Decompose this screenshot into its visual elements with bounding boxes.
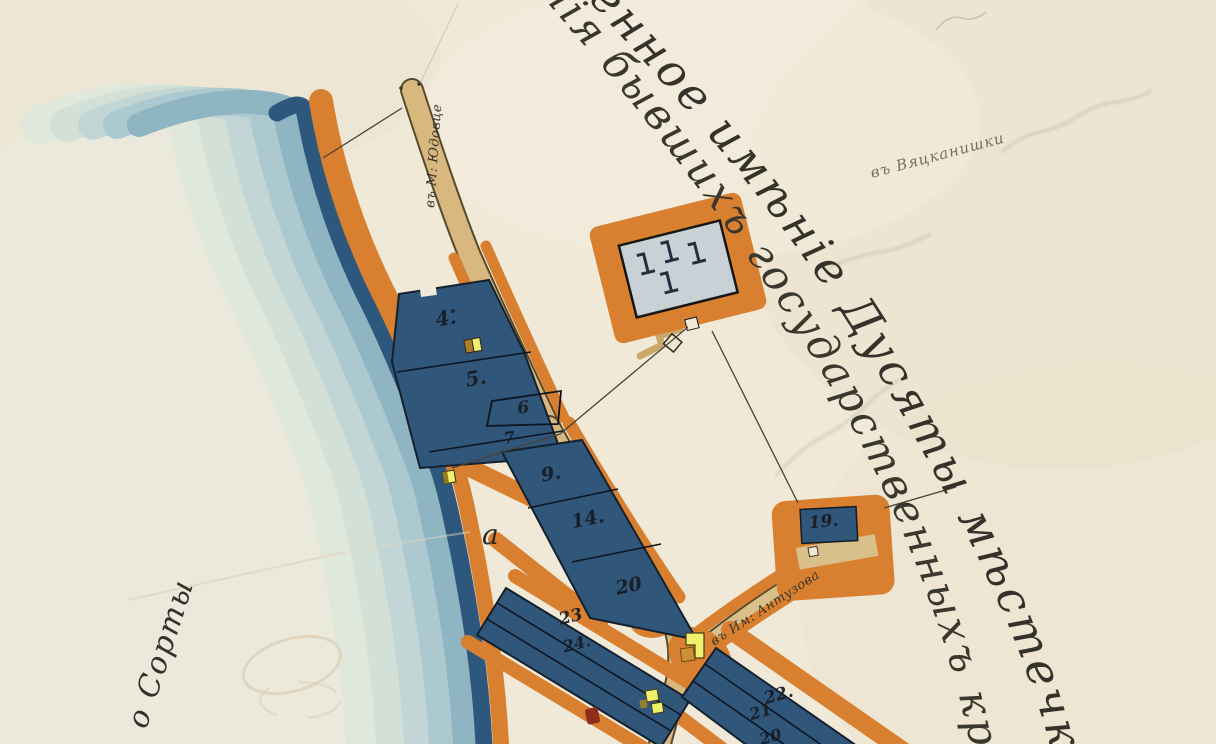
- building-olive: [639, 699, 647, 708]
- historical-map: зенное имѣніе Дусяты мѣстечка Дусяты нія…: [0, 0, 1216, 744]
- building-yellow-2: [651, 702, 664, 714]
- plot-number: 19.: [808, 511, 840, 534]
- plot-number: 9.: [539, 462, 562, 487]
- reference-letter-a: a: [482, 518, 499, 551]
- plot-number: 5.: [463, 364, 488, 391]
- map-canvas: зенное имѣніе Дусяты мѣстечка Дусяты нія…: [0, 0, 1216, 744]
- plot-number: 4.: [433, 304, 458, 331]
- building-brown: [680, 647, 695, 662]
- building-shore: [442, 470, 456, 484]
- building-yellow-1: [645, 689, 659, 702]
- building-plot4: [464, 338, 482, 354]
